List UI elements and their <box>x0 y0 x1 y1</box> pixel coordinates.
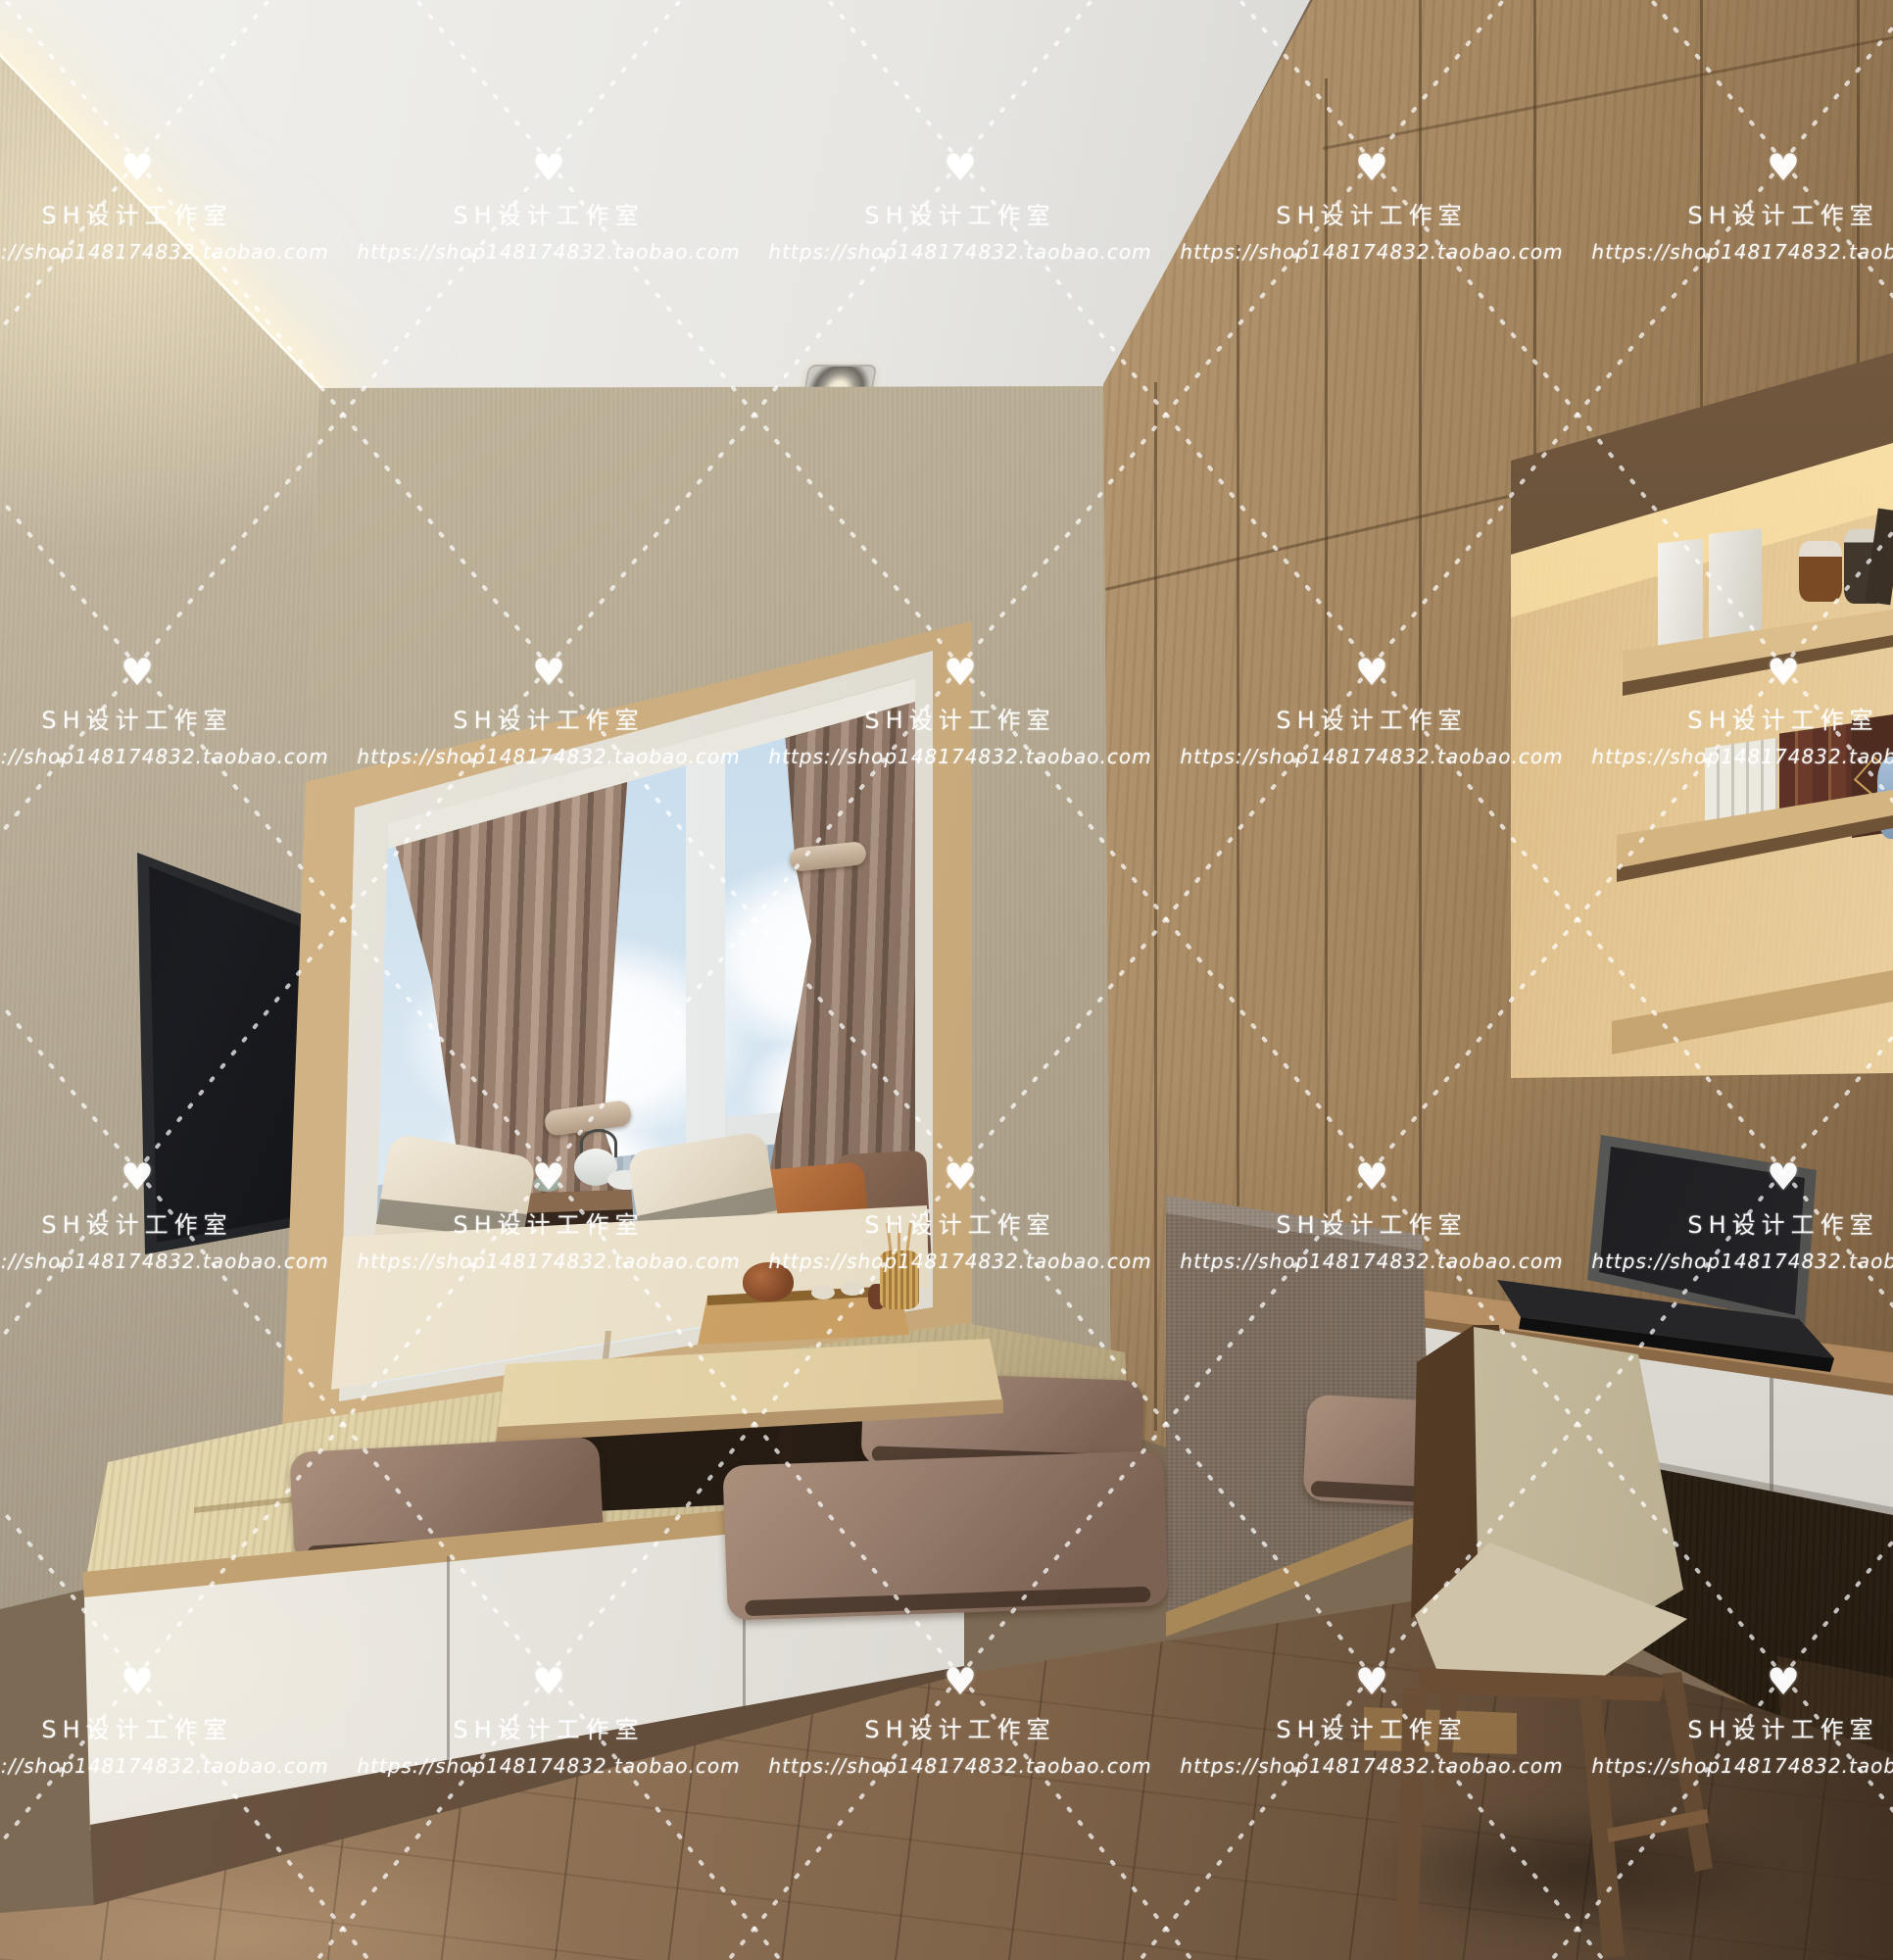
watermark-studio-text: SH设计工作室 <box>1558 1710 1893 1744</box>
watermark-studio-text: SH设计工作室 <box>1146 196 1597 230</box>
watermark-cell: ♥SH设计工作室https://shop148174832.taobao.com <box>0 654 363 768</box>
watermark-cell: ♥SH设计工作室https://shop148174832.taobao.com <box>1146 149 1597 264</box>
watermark-cell: ♥SH设计工作室https://shop148174832.taobao.com <box>0 1158 363 1273</box>
watermark-studio-text: SH设计工作室 <box>735 701 1186 735</box>
watermark-url-text: https://shop148174832.taobao.com <box>735 1249 1186 1273</box>
watermark-studio-text: SH设计工作室 <box>1558 701 1893 735</box>
watermark-url-text: https://shop148174832.taobao.com <box>735 745 1186 768</box>
watermark-studio-text: SH设计工作室 <box>735 1205 1186 1240</box>
heart-icon: ♥ <box>1146 654 1597 693</box>
watermark-layer: ♥SH设计工作室https://shop148174832.taobao.com… <box>0 0 1893 1960</box>
watermark-studio-text: SH设计工作室 <box>0 196 363 230</box>
watermark-cell: ♥SH设计工作室https://shop148174832.taobao.com <box>1558 1158 1893 1273</box>
heart-icon: ♥ <box>323 149 774 188</box>
heart-icon: ♥ <box>0 1158 363 1198</box>
watermark-url-text: https://shop148174832.taobao.com <box>323 1249 774 1273</box>
watermark-cell: ♥SH设计工作室https://shop148174832.taobao.com <box>323 654 774 768</box>
watermark-url-text: https://shop148174832.taobao.com <box>1146 240 1597 264</box>
watermark-url-text: https://shop148174832.taobao.com <box>1558 1249 1893 1273</box>
heart-icon: ♥ <box>735 1663 1186 1702</box>
watermark-url-text: https://shop148174832.taobao.com <box>1558 240 1893 264</box>
watermark-url-text: https://shop148174832.taobao.com <box>0 745 363 768</box>
heart-icon: ♥ <box>323 654 774 693</box>
heart-icon: ♥ <box>1558 654 1893 693</box>
heart-icon: ♥ <box>323 1158 774 1198</box>
watermark-cell: ♥SH设计工作室https://shop148174832.taobao.com <box>323 1663 774 1778</box>
heart-icon: ♥ <box>1146 1158 1597 1198</box>
watermark-cell: ♥SH设计工作室https://shop148174832.taobao.com <box>0 1663 363 1778</box>
watermark-url-text: https://shop148174832.taobao.com <box>1146 1754 1597 1778</box>
watermark-cell: ♥SH设计工作室https://shop148174832.taobao.com <box>735 1663 1186 1778</box>
heart-icon: ♥ <box>0 654 363 693</box>
watermark-studio-text: SH设计工作室 <box>323 1205 774 1240</box>
watermark-cell: ♥SH设计工作室https://shop148174832.taobao.com <box>1146 1158 1597 1273</box>
watermark-studio-text: SH设计工作室 <box>735 196 1186 230</box>
room-photo: ♥SH设计工作室https://shop148174832.taobao.com… <box>0 0 1893 1960</box>
watermark-studio-text: SH设计工作室 <box>1146 1710 1597 1744</box>
watermark-cell: ♥SH设计工作室https://shop148174832.taobao.com <box>323 149 774 264</box>
watermark-url-text: https://shop148174832.taobao.com <box>735 240 1186 264</box>
watermark-url-text: https://shop148174832.taobao.com <box>1558 745 1893 768</box>
watermark-studio-text: SH设计工作室 <box>735 1710 1186 1744</box>
watermark-url-text: https://shop148174832.taobao.com <box>0 240 363 264</box>
heart-icon: ♥ <box>1146 1663 1597 1702</box>
watermark-cell: ♥SH设计工作室https://shop148174832.taobao.com <box>323 1158 774 1273</box>
heart-icon: ♥ <box>1146 149 1597 188</box>
watermark-studio-text: SH设计工作室 <box>1558 196 1893 230</box>
watermark-url-text: https://shop148174832.taobao.com <box>0 1754 363 1778</box>
watermark-studio-text: SH设计工作室 <box>1146 701 1597 735</box>
watermark-studio-text: SH设计工作室 <box>0 1710 363 1744</box>
heart-icon: ♥ <box>735 1158 1186 1198</box>
heart-icon: ♥ <box>1558 149 1893 188</box>
watermark-url-text: https://shop148174832.taobao.com <box>1146 1249 1597 1273</box>
watermark-url-text: https://shop148174832.taobao.com <box>323 240 774 264</box>
watermark-url-text: https://shop148174832.taobao.com <box>735 1754 1186 1778</box>
heart-icon: ♥ <box>1558 1663 1893 1702</box>
watermark-studio-text: SH设计工作室 <box>1558 1205 1893 1240</box>
heart-icon: ♥ <box>0 149 363 188</box>
watermark-url-text: https://shop148174832.taobao.com <box>323 745 774 768</box>
watermark-studio-text: SH设计工作室 <box>323 196 774 230</box>
watermark-cell: ♥SH设计工作室https://shop148174832.taobao.com <box>735 149 1186 264</box>
watermark-url-text: https://shop148174832.taobao.com <box>0 1249 363 1273</box>
heart-icon: ♥ <box>735 149 1186 188</box>
watermark-url-text: https://shop148174832.taobao.com <box>1146 745 1597 768</box>
watermark-url-text: https://shop148174832.taobao.com <box>323 1754 774 1778</box>
heart-icon: ♥ <box>323 1663 774 1702</box>
watermark-studio-text: SH设计工作室 <box>323 1710 774 1744</box>
watermark-cell: ♥SH设计工作室https://shop148174832.taobao.com <box>1146 1663 1597 1778</box>
heart-icon: ♥ <box>735 654 1186 693</box>
watermark-cell: ♥SH设计工作室https://shop148174832.taobao.com <box>735 654 1186 768</box>
watermark-studio-text: SH设计工作室 <box>0 1205 363 1240</box>
heart-icon: ♥ <box>1558 1158 1893 1198</box>
watermark-cell: ♥SH设计工作室https://shop148174832.taobao.com <box>0 149 363 264</box>
watermark-studio-text: SH设计工作室 <box>0 701 363 735</box>
watermark-url-text: https://shop148174832.taobao.com <box>1558 1754 1893 1778</box>
watermark-cell: ♥SH设计工作室https://shop148174832.taobao.com <box>1558 1663 1893 1778</box>
watermark-cell: ♥SH设计工作室https://shop148174832.taobao.com <box>1558 149 1893 264</box>
watermark-studio-text: SH设计工作室 <box>1146 1205 1597 1240</box>
watermark-cell: ♥SH设计工作室https://shop148174832.taobao.com <box>1558 654 1893 768</box>
watermark-cell: ♥SH设计工作室https://shop148174832.taobao.com <box>735 1158 1186 1273</box>
watermark-studio-text: SH设计工作室 <box>323 701 774 735</box>
watermark-cell: ♥SH设计工作室https://shop148174832.taobao.com <box>1146 654 1597 768</box>
heart-icon: ♥ <box>0 1663 363 1702</box>
